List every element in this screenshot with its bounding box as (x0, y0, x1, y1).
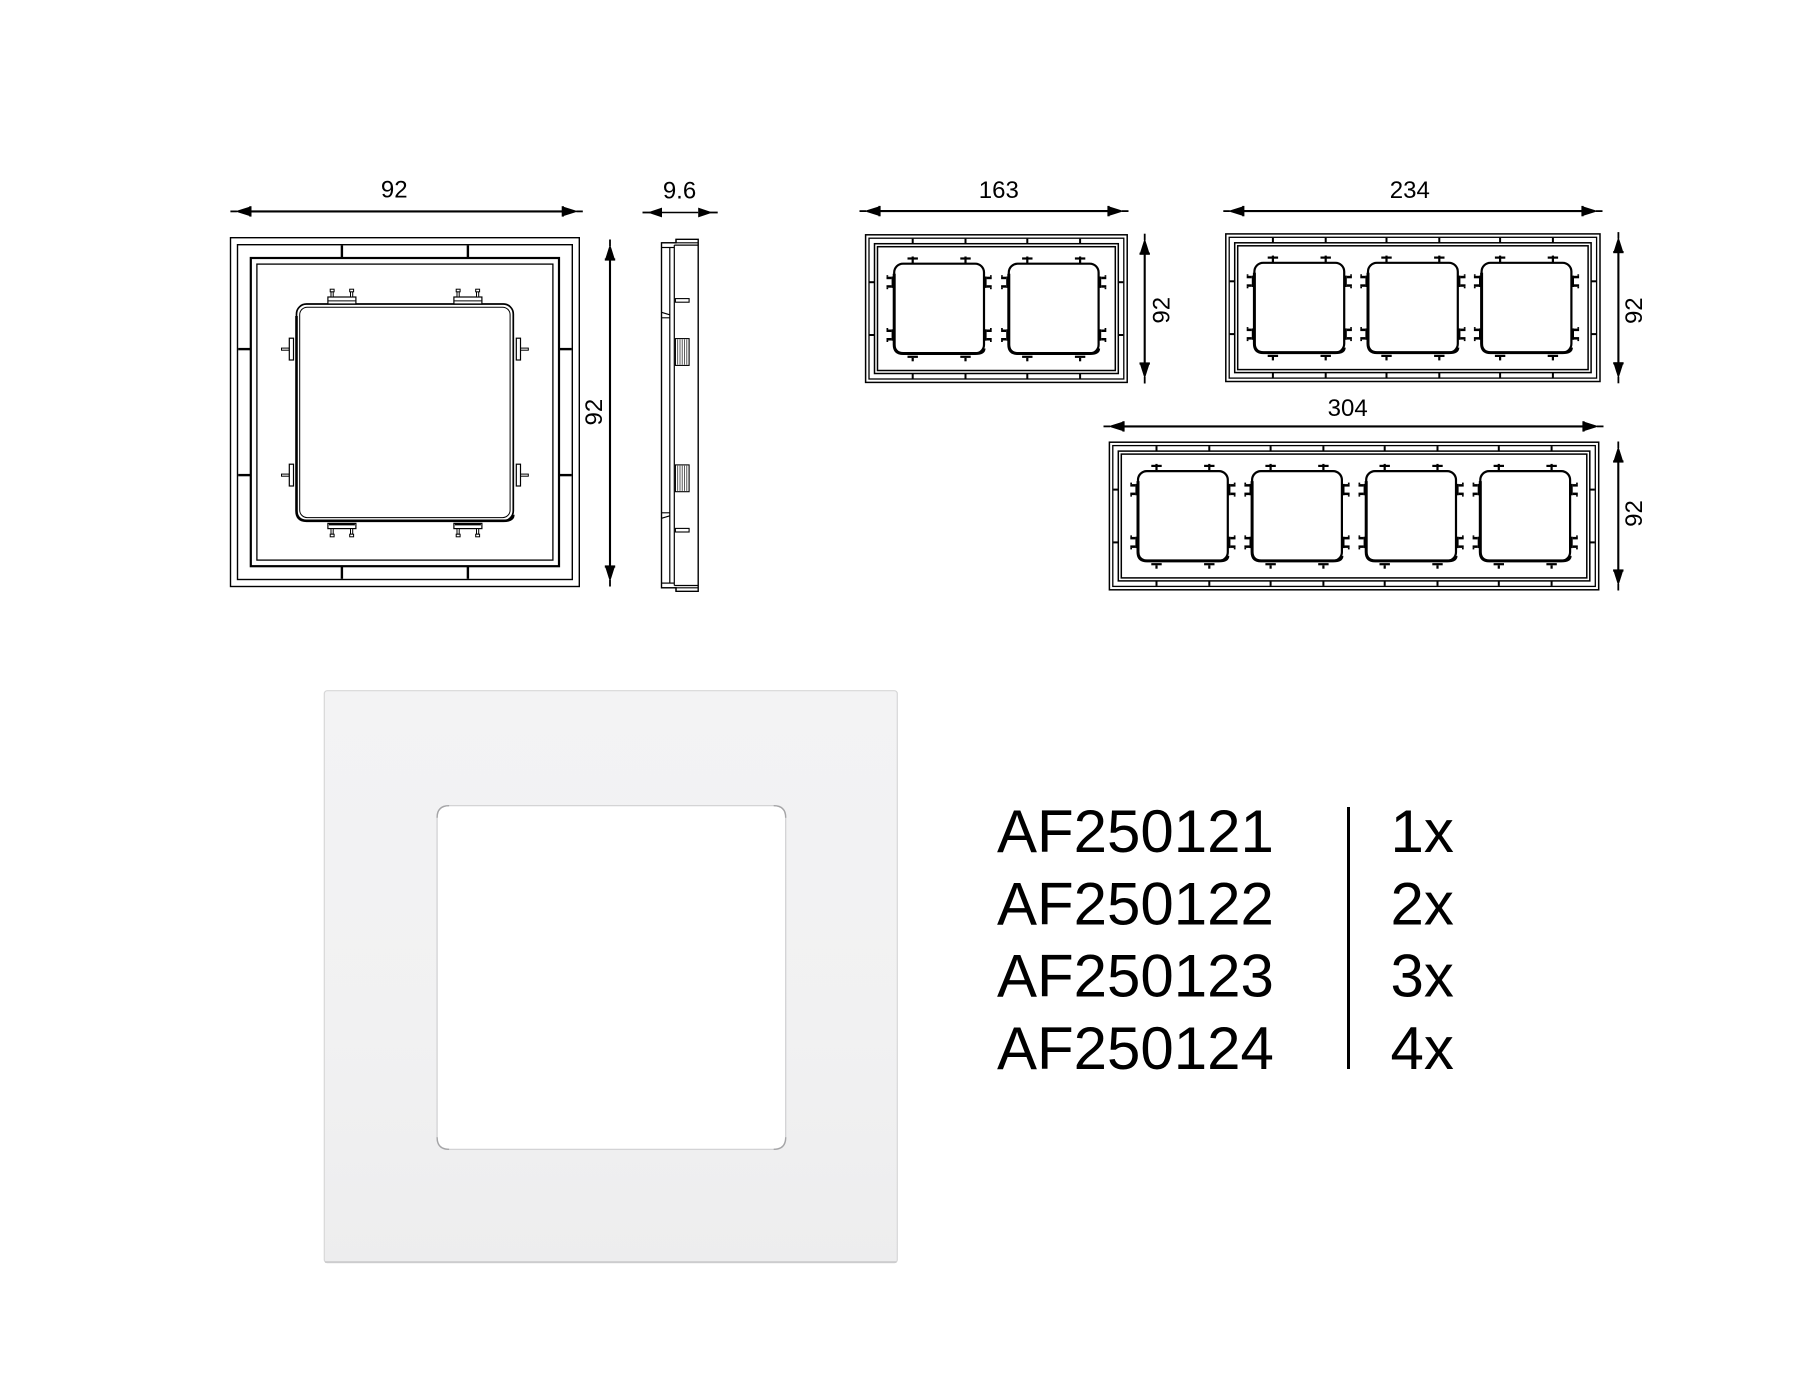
svg-text:92: 92 (581, 399, 608, 426)
svg-text:2x: 2x (1391, 870, 1454, 937)
svg-text:3x: 3x (1391, 943, 1454, 1010)
svg-text:AF250124: AF250124 (997, 1015, 1274, 1082)
svg-text:AF250122: AF250122 (997, 870, 1274, 937)
svg-text:9.6: 9.6 (663, 178, 696, 205)
svg-text:92: 92 (1621, 500, 1648, 527)
svg-text:92: 92 (1149, 297, 1176, 324)
svg-text:AF250123: AF250123 (997, 943, 1274, 1010)
svg-text:234: 234 (1390, 177, 1430, 204)
svg-text:92: 92 (1621, 297, 1648, 324)
svg-text:163: 163 (979, 177, 1019, 204)
svg-text:1x: 1x (1391, 798, 1454, 865)
svg-text:AF250121: AF250121 (997, 798, 1274, 865)
svg-text:304: 304 (1328, 395, 1368, 422)
svg-text:4x: 4x (1391, 1015, 1454, 1082)
svg-text:92: 92 (381, 177, 408, 204)
